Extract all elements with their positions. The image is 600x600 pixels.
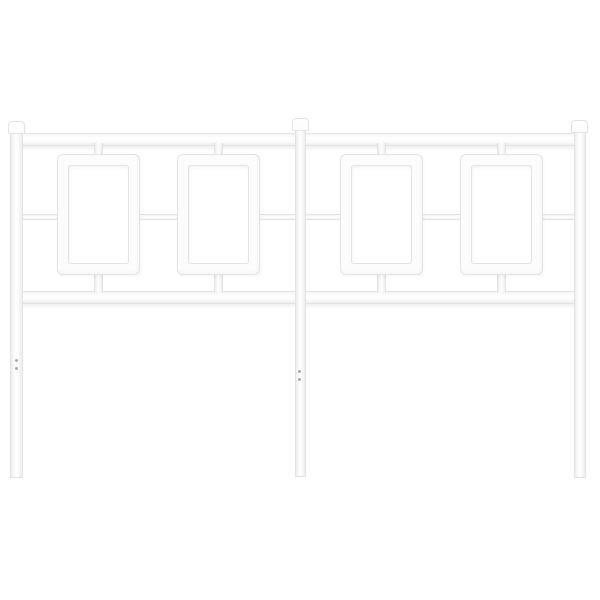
left-leg-post: [10, 131, 23, 478]
center-post-cap: [292, 118, 309, 131]
panel-frame-3: [340, 154, 423, 275]
right-post-cap: [571, 120, 588, 133]
panel-4-bottom-stub: [497, 272, 506, 293]
right-leg-post: [574, 131, 586, 478]
mid-bar-panel-1-to-panel-2: [137, 214, 180, 220]
product-photo-canvas: [0, 0, 600, 600]
center-post-screw-hole-lower: [298, 378, 301, 381]
panel-1-bottom-stub: [94, 272, 103, 293]
mid-bar-panel-4-to-right-post: [540, 214, 577, 220]
panel-2-bottom-stub: [214, 272, 223, 293]
panel-frame-2-opening: [188, 165, 249, 264]
center-post-screw-hole-upper: [298, 370, 301, 373]
mid-bar-center-post-to-panel-3: [303, 214, 343, 220]
panel-frame-4-opening: [471, 165, 532, 264]
panel-frame-2: [177, 154, 260, 275]
panel-frame-1-opening: [68, 165, 129, 264]
mid-bar-left-post-to-panel-1: [20, 214, 60, 220]
left-post-cap: [8, 121, 25, 134]
panel-frame-4: [460, 154, 543, 275]
panel-frame-3-opening: [351, 165, 412, 264]
left-post-screw-hole-upper: [15, 359, 18, 362]
panel-3-bottom-stub: [377, 272, 386, 293]
center-leg-post: [295, 129, 306, 477]
panel-frame-1: [57, 154, 140, 275]
mid-bar-panel-3-to-panel-4: [420, 214, 463, 220]
left-post-screw-hole-lower: [15, 367, 18, 370]
mid-bar-panel-2-to-center-post: [257, 214, 298, 220]
headboard-product: [0, 0, 600, 600]
